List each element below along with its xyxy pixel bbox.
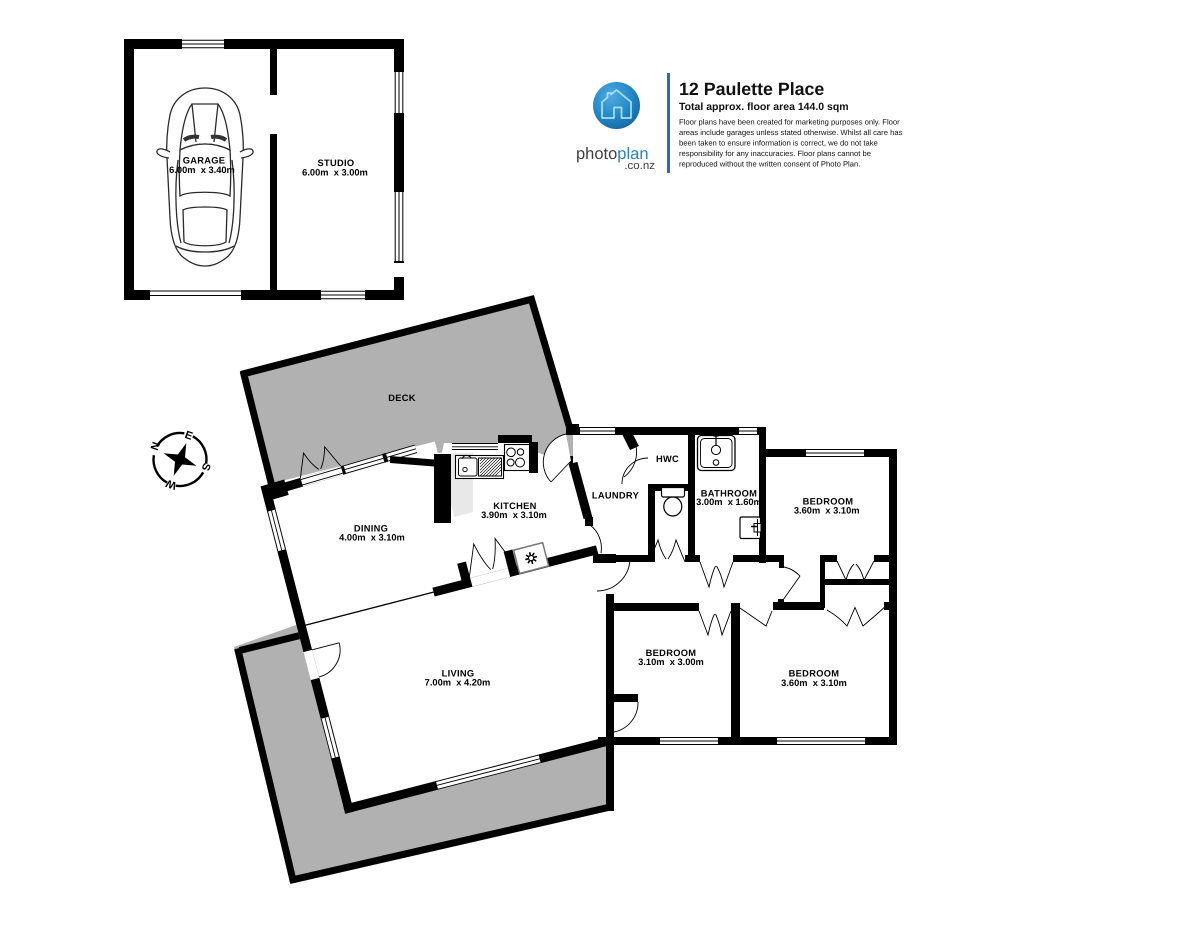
- svg-text:6.00m x 3.00m: 6.00m x 3.00m: [302, 167, 368, 177]
- svg-text:4.00m x 3.10m: 4.00m x 3.10m: [339, 533, 405, 543]
- svg-text:Total approx. floor area 144.0: Total approx. floor area 144.0 sqm: [679, 101, 849, 113]
- svg-text:6.00m x 3.40m: 6.00m x 3.40m: [169, 165, 235, 175]
- svg-text:3.90m x 3.10m: 3.90m x 3.10m: [481, 510, 547, 520]
- svg-text:areas include garages unless s: areas include garages unless stated othe…: [679, 128, 903, 137]
- svg-text:responsibility for any inaccur: responsibility for any inaccuracies. Flo…: [679, 149, 871, 158]
- svg-text:12 Paulette Place: 12 Paulette Place: [679, 79, 824, 99]
- svg-text:reproduced without the written: reproduced without the written consent o…: [679, 160, 860, 169]
- svg-text:Floor plans have been created: Floor plans have been created for market…: [679, 118, 900, 127]
- svg-text:DECK: DECK: [388, 393, 416, 403]
- svg-text:3.60m x 3.10m: 3.60m x 3.10m: [781, 678, 847, 688]
- svg-text:3.10m x 3.00m: 3.10m x 3.00m: [638, 657, 704, 667]
- svg-text:been taken to ensure informati: been taken to ensure information is corr…: [679, 139, 878, 148]
- svg-text:3.60m x 3.10m: 3.60m x 3.10m: [794, 505, 860, 515]
- svg-text:3.00m x 1.60m: 3.00m x 1.60m: [696, 497, 762, 507]
- svg-text:7.00m x 4.20m: 7.00m x 4.20m: [425, 678, 491, 688]
- svg-text:LAUNDRY: LAUNDRY: [592, 491, 640, 501]
- svg-text:HWC: HWC: [656, 454, 679, 464]
- svg-text:.co.nz: .co.nz: [624, 160, 655, 172]
